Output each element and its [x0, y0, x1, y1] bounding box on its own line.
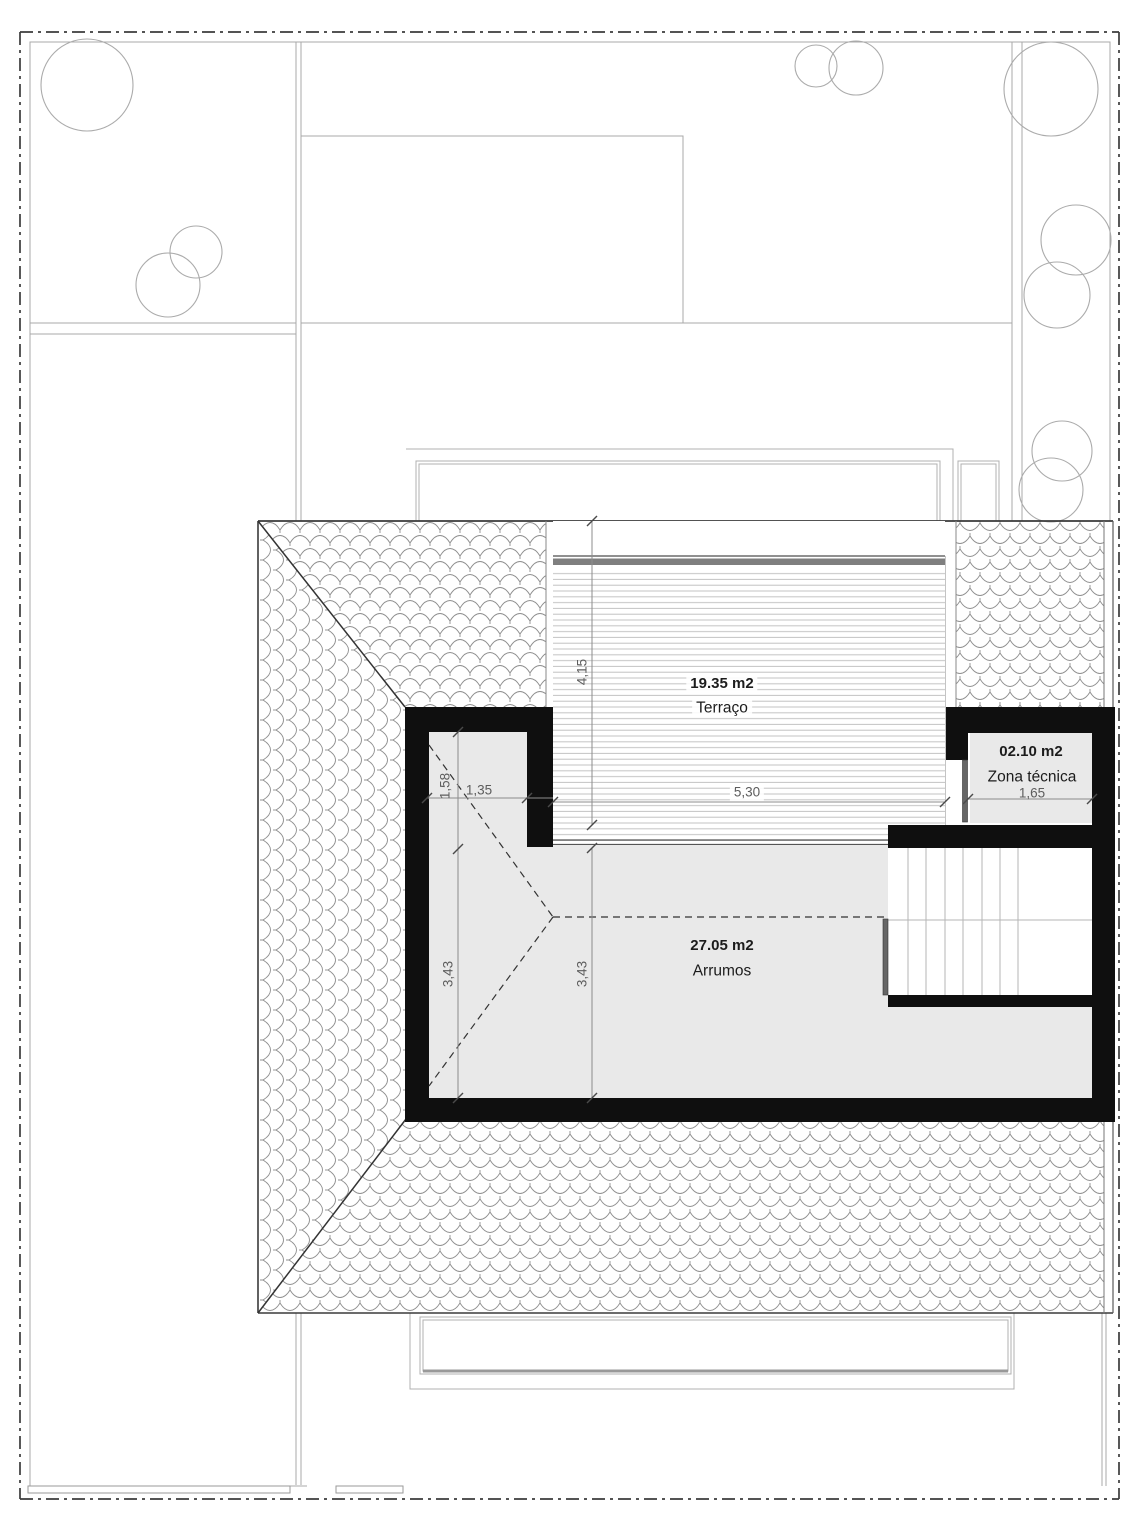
- tree-icon: [1041, 205, 1111, 275]
- door-leaf: [963, 760, 968, 822]
- stairs: [888, 848, 1092, 995]
- floor-plan: 19.35 m2 Terraço 27.05 m2 Arrumos 02.10 …: [0, 0, 1125, 1526]
- zona-tecnica-area-label: 02.10 m2: [999, 744, 1062, 761]
- tree-icon: [1019, 458, 1083, 522]
- dim-nook-width: 1,35: [466, 784, 492, 799]
- tree-icon: [1024, 262, 1090, 328]
- room-below-stairs: [888, 1007, 1092, 1099]
- dim-arrumos-depth-left: 3,43: [442, 961, 457, 987]
- roof-slope-right: [956, 521, 1104, 707]
- door-leaf: [883, 919, 888, 995]
- terraco-area-label: 19.35 m2: [686, 676, 757, 693]
- trees: [41, 39, 1111, 522]
- roof-slope-bottom: [258, 1120, 1104, 1313]
- room-arrumos: [429, 845, 888, 1099]
- dim-terraco-width: 5,30: [730, 786, 764, 801]
- tree-icon: [41, 39, 133, 131]
- tree-icon: [1032, 421, 1092, 481]
- floor-plan-drawing: [0, 0, 1125, 1526]
- zona-tecnica-name-label: Zona técnica: [988, 768, 1077, 785]
- dim-arrumos-depth-mid: 3,43: [576, 961, 591, 987]
- tree-icon: [795, 45, 837, 87]
- terraco-name-label: Terraço: [692, 699, 752, 716]
- arrumos-area-label: 27.05 m2: [690, 938, 753, 955]
- dim-terraco-depth: 4,15: [576, 659, 591, 685]
- tree-icon: [136, 253, 200, 317]
- arrumos-name-label: Arrumos: [693, 962, 752, 979]
- tree-icon: [1004, 42, 1098, 136]
- dim-nook-depth: 1,58: [439, 773, 454, 799]
- dim-zona-tecnica-width: 1,65: [1019, 787, 1045, 802]
